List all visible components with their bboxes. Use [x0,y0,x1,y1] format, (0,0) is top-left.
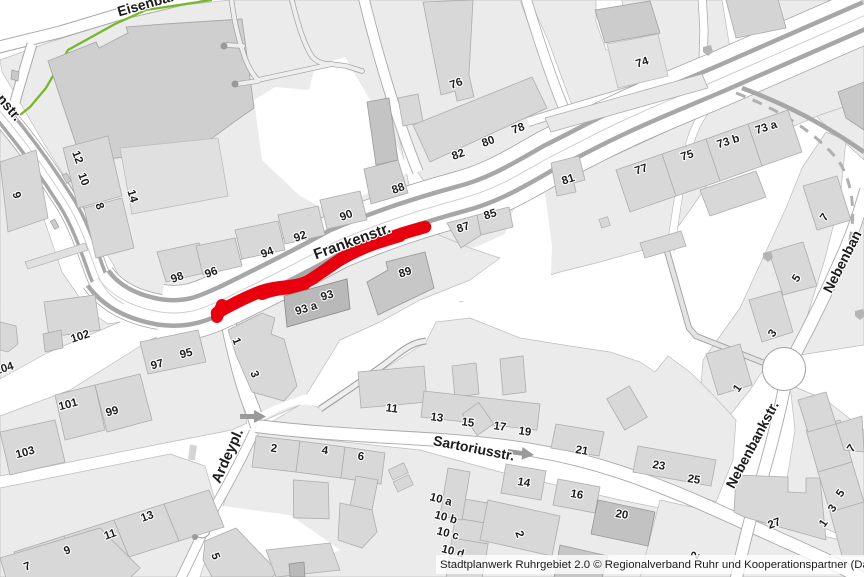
svg-text:11: 11 [385,402,399,416]
svg-text:19: 19 [518,425,532,439]
svg-text:23: 23 [651,459,666,473]
svg-text:15: 15 [461,416,476,430]
svg-text:Stadtplanwerk Ruhrgebiet 2.0 ©: Stadtplanwerk Ruhrgebiet 2.0 © Regionalv… [440,559,864,571]
svg-text:13: 13 [430,411,444,425]
svg-text:17: 17 [493,420,507,434]
svg-text:16: 16 [569,488,584,502]
svg-text:20: 20 [614,508,629,522]
